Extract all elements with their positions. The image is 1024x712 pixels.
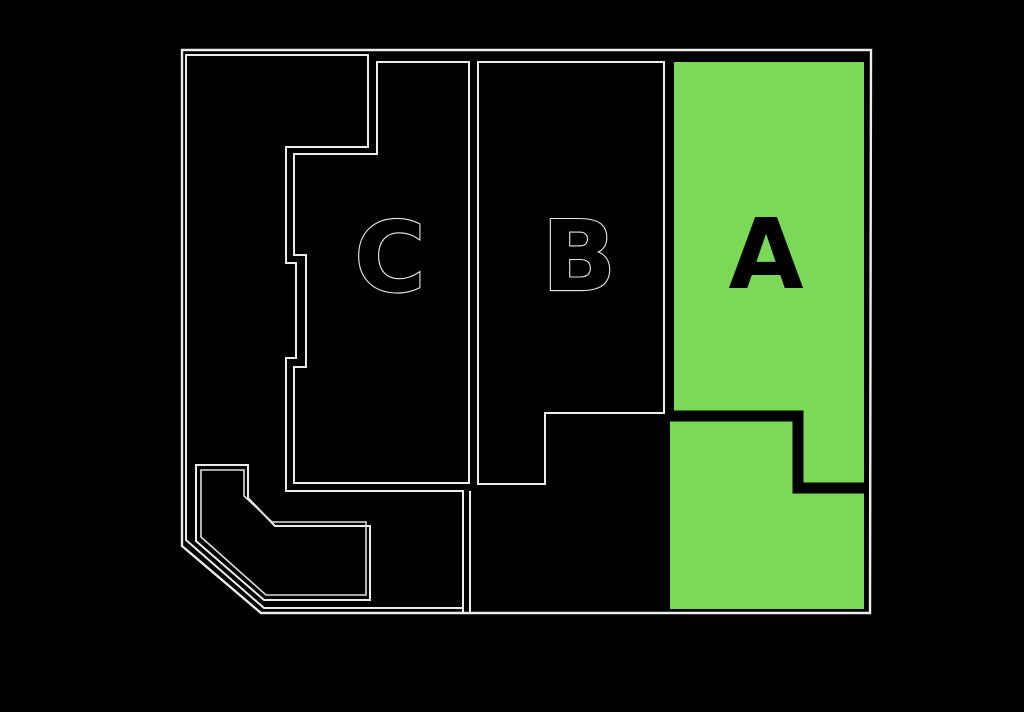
section-b-label: B (542, 200, 616, 313)
banner-parcel-inner-outline (201, 470, 366, 595)
section-a-highlight[interactable] (670, 62, 864, 609)
section-a-label: A (728, 198, 803, 311)
section-c-label: C (354, 201, 425, 314)
site-plan-svg: CBA (0, 0, 1024, 712)
site-plan: CBA (0, 0, 1024, 712)
